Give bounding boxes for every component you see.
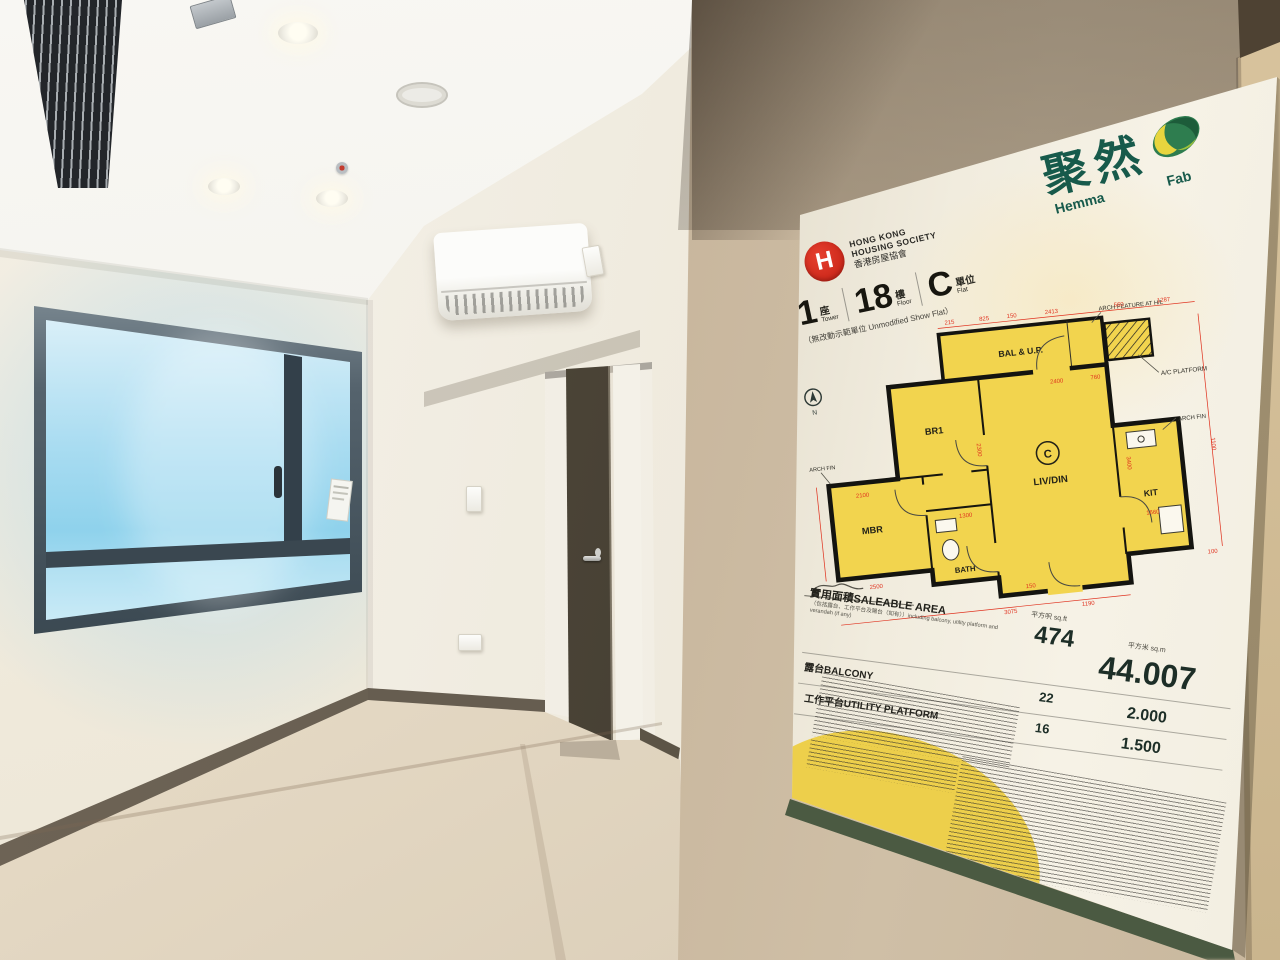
unit-outline	[819, 358, 1195, 613]
sprinkler-head	[336, 162, 348, 174]
window-label-sticker	[327, 479, 353, 521]
dim-label: 215	[944, 320, 955, 327]
arch-fin-label: ARCH FIN	[809, 465, 836, 474]
north-label: N	[812, 409, 818, 416]
window-handle	[274, 466, 282, 498]
downlight	[316, 190, 348, 207]
air-conditioner-unit	[433, 223, 593, 322]
flat-letter: C	[925, 265, 956, 303]
divider	[915, 272, 923, 305]
brand-name-en-right: Fab	[1165, 167, 1193, 189]
ceiling-round-diffuser	[396, 82, 448, 108]
floor-en: Floor	[897, 299, 913, 309]
downlight	[278, 22, 318, 44]
window	[34, 300, 364, 636]
balcony-sqft: 22	[1010, 685, 1083, 709]
ac-platform-label: A/C PLATFORM	[1161, 365, 1208, 377]
tower-en: Tower	[821, 315, 839, 325]
flat-en: Flat	[957, 285, 978, 296]
divider	[842, 288, 850, 321]
dim-label: 1100	[1209, 437, 1216, 451]
room-label: KIT	[1143, 487, 1159, 498]
north-compass-icon: N	[804, 388, 823, 417]
dim-label: 150	[1007, 313, 1018, 320]
logo-letter: H	[813, 246, 836, 277]
arch-fin-label: ARCH FIN	[1178, 414, 1207, 423]
dim-label: 2413	[1045, 309, 1059, 316]
saleable-area-sqm: 44.007	[1096, 649, 1198, 698]
dim-label: 1190	[1082, 601, 1096, 608]
dim-label: 560	[1114, 302, 1125, 309]
downlight	[208, 178, 240, 195]
show-flat-photo: 聚然 Hemma Fab H HON	[0, 0, 1280, 960]
flat-mark: C	[1043, 448, 1052, 461]
dim-label: 150	[1026, 583, 1037, 590]
door-handle-rosette	[595, 548, 601, 557]
room-label: BR1	[924, 425, 943, 437]
ac-platform-area	[1104, 319, 1153, 360]
brand-bean-icon	[1140, 105, 1212, 169]
light-switch	[466, 486, 482, 512]
housing-society-logo: H	[801, 238, 849, 286]
balcony-sqm: 2.000	[1126, 705, 1168, 728]
power-socket	[458, 634, 482, 651]
dim-label: 100	[1208, 549, 1219, 556]
dim-label: 1287	[1157, 297, 1171, 304]
saleable-area-sqft: 474	[1017, 619, 1092, 656]
dim-label: 825	[979, 316, 990, 323]
floor-number: 18	[852, 278, 896, 319]
window-mullion	[284, 354, 302, 550]
dim-label: 760	[1090, 374, 1101, 381]
